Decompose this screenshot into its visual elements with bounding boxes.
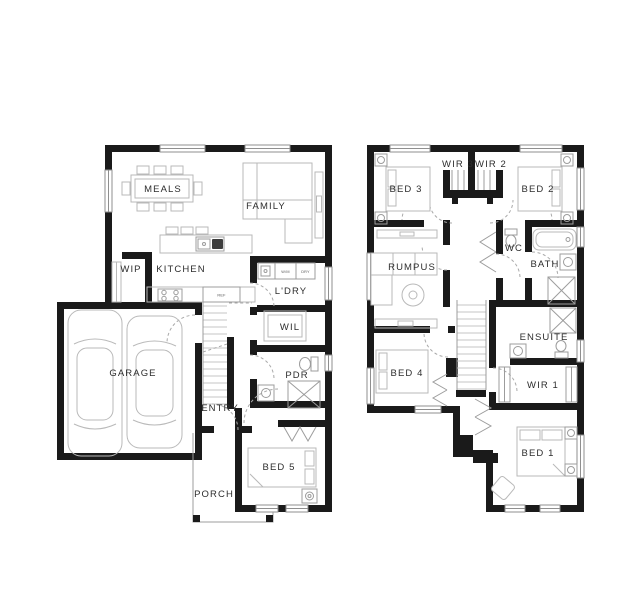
room-rumpus: RUMPUS bbox=[371, 230, 437, 328]
room-bed3: BED 3 bbox=[375, 154, 430, 224]
sink-icon bbox=[212, 239, 223, 249]
car-icon bbox=[68, 310, 122, 456]
room-label-ensuite: ENSUITE bbox=[520, 332, 569, 343]
floorplan-canvas: MEALS FAMILY REF WIP KITC bbox=[0, 0, 639, 591]
room-label-porch: PORCH bbox=[194, 489, 234, 500]
room-label-wir2: WIR 2 bbox=[475, 159, 507, 170]
first-floor-plan: WIR 3 WIR 2 BED 3 BED 2 bbox=[367, 145, 584, 512]
robe-doors-icon bbox=[284, 427, 316, 441]
side-table-icon bbox=[375, 154, 387, 166]
room-wil: WIL bbox=[264, 311, 306, 341]
robe-doors-icon bbox=[433, 374, 447, 406]
side-table-icon bbox=[565, 427, 577, 439]
room-label-bed1: BED 1 bbox=[522, 448, 555, 459]
room-entry: ENTRY bbox=[201, 403, 239, 414]
side-table-icon bbox=[561, 154, 573, 166]
room-label-bed2: BED 2 bbox=[522, 184, 555, 195]
basin-icon bbox=[560, 254, 576, 270]
gf-stairs bbox=[203, 302, 227, 410]
room-label-bath: BATH bbox=[530, 259, 559, 270]
room-label-family: FAMILY bbox=[246, 201, 286, 212]
room-label-rumpus: RUMPUS bbox=[388, 262, 436, 273]
car-icon bbox=[127, 316, 182, 448]
laundry-tub-icon bbox=[261, 266, 270, 276]
room-label-wip: WIP bbox=[120, 264, 141, 275]
basin-icon bbox=[258, 385, 274, 401]
room-kitchen: REF WIP KITCHEN bbox=[112, 227, 255, 302]
porch-post bbox=[193, 515, 200, 522]
room-bed5: BED 5 bbox=[248, 427, 317, 503]
washer-label: W/M bbox=[281, 270, 289, 274]
toilet-icon bbox=[300, 358, 311, 371]
room-wc: WC bbox=[505, 229, 523, 254]
porch-post bbox=[266, 515, 273, 522]
room-label-pdr: PDR bbox=[285, 370, 308, 381]
chair-icon bbox=[490, 475, 515, 500]
side-table-icon bbox=[565, 464, 577, 476]
room-label-wil: WIL bbox=[280, 322, 300, 333]
room-label-wir3: WIR 3 bbox=[442, 159, 474, 170]
room-family: FAMILY bbox=[243, 163, 323, 243]
room-label-wir1: WIR 1 bbox=[527, 380, 559, 391]
landing-robe-icon bbox=[475, 399, 491, 435]
room-bed2: BED 2 bbox=[518, 154, 573, 224]
room-label-entry: ENTRY bbox=[201, 403, 239, 414]
room-bath: BATH bbox=[530, 229, 576, 304]
ground-floor-plan: MEALS FAMILY REF WIP KITC bbox=[57, 145, 332, 522]
room-label-bed3: BED 3 bbox=[390, 184, 423, 195]
dryer-label: DRY bbox=[301, 270, 310, 274]
room-label-wc: WC bbox=[505, 243, 523, 254]
room-wir1: WIR 1 bbox=[499, 367, 577, 402]
floor-plan-svg: MEALS FAMILY REF WIP KITC bbox=[0, 0, 639, 591]
room-label-garage: GARAGE bbox=[109, 368, 156, 379]
room-ensuite: ENSUITE bbox=[510, 308, 576, 358]
fridge-label: REF bbox=[217, 294, 226, 298]
linen-doors-icon bbox=[480, 232, 496, 272]
room-bed4: BED 4 bbox=[376, 350, 447, 406]
room-label-laundry: L'DRY bbox=[275, 286, 307, 297]
room-laundry: W/M DRY L'DRY bbox=[258, 263, 315, 297]
room-pdr: PDR bbox=[258, 357, 320, 408]
room-bed1: BED 1 bbox=[490, 427, 577, 501]
room-label-bed5: BED 5 bbox=[263, 462, 296, 473]
room-label-bed4: BED 4 bbox=[391, 368, 424, 379]
ff-stairs bbox=[457, 300, 486, 390]
side-table-icon bbox=[302, 489, 317, 503]
room-label-kitchen: KITCHEN bbox=[156, 264, 205, 275]
room-label-meals: MEALS bbox=[144, 184, 182, 195]
room-garage: GARAGE bbox=[68, 310, 182, 456]
room-meals: MEALS bbox=[122, 166, 202, 211]
